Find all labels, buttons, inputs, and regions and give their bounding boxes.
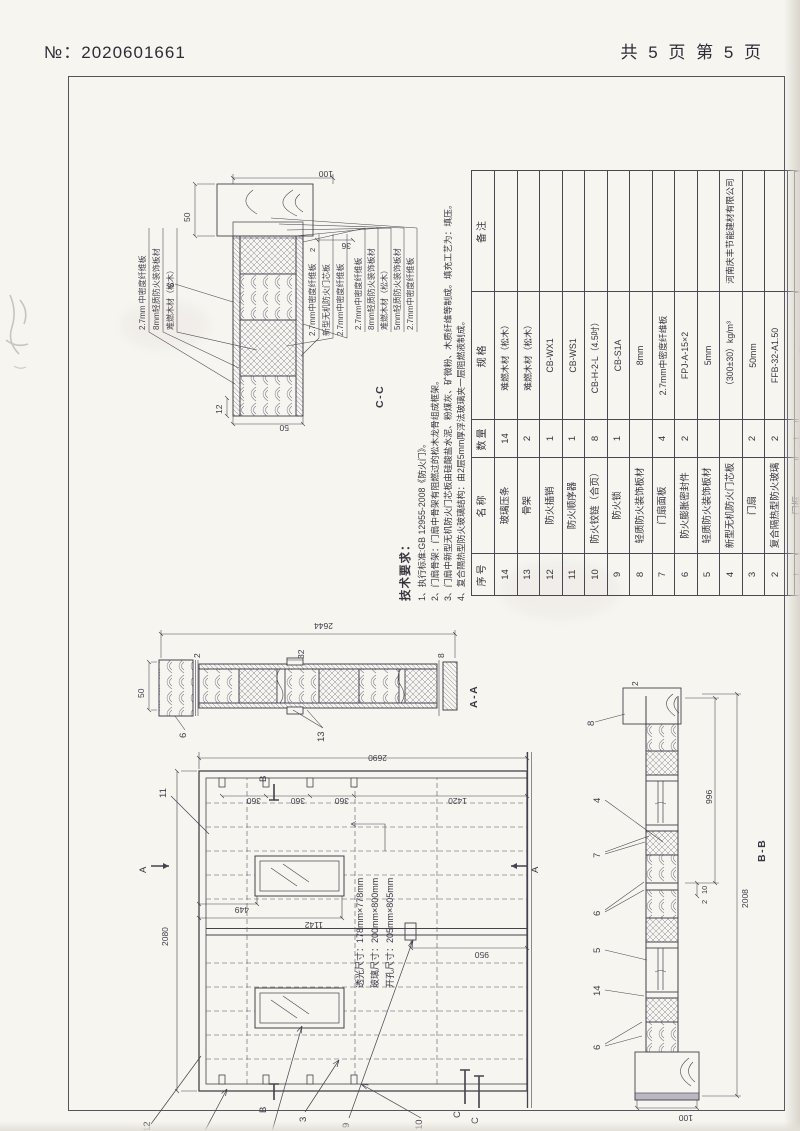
table-cell: 2: [742, 420, 765, 458]
table-cell: 玻璃压条: [495, 458, 518, 554]
table-cell: [495, 171, 518, 292]
scan-bottom-shadow: [0, 1121, 800, 1131]
table-cell: 防火锁: [607, 458, 630, 554]
table-cell: CB-WS1: [562, 292, 585, 420]
table-cell: 骨架: [517, 458, 540, 554]
dim-label: 950: [475, 951, 489, 960]
table-cell: 12: [540, 554, 563, 596]
glass-size-line: 玻璃尺寸：200mm×800mm: [368, 878, 383, 988]
table-cell: 9: [607, 554, 630, 596]
table-row: 3门扇250mm: [742, 171, 765, 596]
view-label: C-C: [375, 385, 386, 408]
table-cell: 8: [630, 554, 653, 596]
callout-label: 11: [159, 788, 169, 798]
glass-size-notes: 透光尺寸：178mm×778mm玻璃尺寸：200mm×800mm开孔尺寸：205…: [353, 878, 398, 988]
technical-note-line: 1、执行标准:GB 12955-2008《防火门》。: [416, 169, 429, 601]
table-cell: [697, 420, 720, 458]
scanned-page: №：2020601661 共 5 页 第 5 页: [0, 0, 800, 1131]
dim-label: 50: [137, 689, 146, 698]
technical-notes: 技术要求： 1、执行标准:GB 12955-2008《防火门》。2、门扇骨架：门…: [397, 169, 468, 601]
document-number: №：2020601661: [44, 38, 186, 63]
drawing-sheet: 2080269036036036014204491142950121112391…: [137, 153, 800, 1131]
dim-label: 1142: [305, 921, 323, 930]
section-letter: A: [531, 867, 541, 873]
table-cell: 3: [742, 554, 765, 596]
callout-label: 6: [167, 283, 177, 288]
view-label: B-B: [757, 839, 768, 862]
table-cell: 防火插销: [540, 458, 563, 554]
table-header-cell: 备注: [472, 171, 495, 292]
drawing-border: 2080269036036036014204491142950121112391…: [68, 76, 785, 1111]
callout-label: 13: [317, 731, 327, 742]
table-row: 8轻质防火装饰板材8mm: [630, 171, 653, 596]
table-cell: 2: [517, 420, 540, 458]
table-cell: FPJ-A-15×2: [675, 292, 698, 420]
table-cell: [675, 171, 698, 292]
material-label: 2.7mm中密度纤维板: [355, 258, 363, 330]
table-cell: 14: [495, 554, 518, 596]
table-cell: [607, 171, 630, 292]
table-cell: 防火膨胀密封件: [675, 458, 698, 554]
table-cell: [652, 171, 675, 292]
material-label: 2.7mm中密度纤维板: [337, 264, 345, 336]
technical-note-line: 4、复合隔热型防火玻璃结构：由2层5mm厚浮法玻璃夹一层阻燃液制成。: [455, 169, 468, 601]
dim-label: 360: [335, 797, 349, 806]
table-row: 9防火锁1CB-S1A: [607, 171, 630, 596]
table-cell: 门扇: [742, 458, 765, 554]
section-letter: A: [139, 867, 149, 873]
dim-label: 2: [701, 900, 709, 904]
table-cell: [742, 171, 765, 292]
dim-label: 100: [319, 170, 333, 179]
material-label: 8mm轻质防火装饰板材: [368, 248, 376, 330]
table-header-cell: 数量: [472, 420, 495, 458]
material-label: 难燃木材（松木）: [167, 266, 175, 330]
table-row: 11防火顺序器1CB-WS1: [562, 171, 585, 596]
material-label: 2.7mm中密度纤维板: [309, 264, 317, 336]
parts-table: 序号名称数量规格备注 14玻璃压条14难燃木材（松木）13骨架2难燃木材（松木）…: [471, 170, 800, 596]
dim-label: 360: [291, 797, 305, 806]
section-letter: B: [259, 776, 269, 782]
table-cell: CB-WX1: [540, 292, 563, 420]
table-cell: 轻质防火装饰板材: [630, 458, 653, 554]
table-header-cell: 规格: [472, 292, 495, 420]
table-cell: [585, 171, 608, 292]
callout-label: 7: [593, 853, 603, 858]
table-cell: 1: [562, 420, 585, 458]
dim-label: 2690: [368, 754, 387, 763]
table-cell: （300±30）kg/m³: [720, 292, 743, 420]
material-label: 新型无机防火门芯板: [323, 264, 331, 336]
table-row: 13骨架2难燃木材（松木）: [517, 171, 540, 596]
table-row: 14玻璃压条14难燃木材（松木）: [495, 171, 518, 596]
dim-label: 2080: [161, 927, 170, 946]
callout-label: 6: [179, 733, 189, 738]
table-cell: 50mm: [742, 292, 765, 420]
table-cell: 8: [585, 420, 608, 458]
table-row: 10防火铰链（合页）8CB-H-2-L（4.5吋）: [585, 171, 608, 596]
callout-label: 6: [593, 911, 603, 916]
table-cell: 5: [697, 554, 720, 596]
dim-label: 2008: [741, 889, 750, 908]
dim-label: 32: [297, 650, 306, 659]
section-bb: [595, 688, 741, 1110]
table-header-cell: 名称: [472, 458, 495, 554]
material-label: 8mm轻质防火装饰板材: [153, 248, 161, 330]
table-header-row: 序号名称数量规格备注: [472, 171, 495, 596]
callout-label: 14: [593, 985, 603, 996]
table-cell: 4: [652, 420, 675, 458]
dim-label: 449: [235, 906, 249, 915]
callout-label: 6: [593, 1045, 603, 1050]
dim-label: 50: [183, 213, 192, 222]
table-cell: 13: [517, 554, 540, 596]
dim-label: 8: [437, 653, 446, 658]
table-cell: 8mm: [630, 292, 653, 420]
scan-edge-shadow: [784, 0, 800, 1131]
technical-note-line: 2、门扇骨架：门扇中骨架有阻燃过的松木龙骨组成框架。: [429, 169, 442, 601]
table-row: 7门扇面板42.7mm中密度纤维板: [652, 171, 675, 596]
table-cell: 1: [607, 420, 630, 458]
table-cell: [562, 171, 585, 292]
table-header-cell: 序号: [472, 554, 495, 596]
glass-size-line: 开孔尺寸：205mm×805mm: [383, 878, 398, 988]
callout-label: 5: [593, 948, 603, 953]
table-cell: [540, 171, 563, 292]
table-cell: [697, 171, 720, 292]
table-cell: 河南庆丰节能建材有限公司: [720, 171, 743, 292]
table-cell: 新型无机防火门芯板: [720, 458, 743, 554]
table-cell: 5mm: [697, 292, 720, 420]
table-row: 4新型无机防火门芯板（300±30）kg/m³河南庆丰节能建材有限公司: [720, 171, 743, 596]
page-count: 共 5 页 第 5 页: [620, 38, 764, 63]
table-cell: 轻质防火装饰板材: [697, 458, 720, 554]
table-cell: 6: [675, 554, 698, 596]
table-cell: [720, 420, 743, 458]
table-row: 5轻质防火装饰板材5mm: [697, 171, 720, 596]
table-cell: 10: [585, 554, 608, 596]
table-cell: [630, 171, 653, 292]
dim-label: 12: [215, 405, 224, 414]
table-cell: 1: [540, 420, 563, 458]
section-letter: C: [453, 1111, 463, 1118]
table-cell: 11: [562, 554, 585, 596]
elevation-view: [151, 752, 532, 1131]
callout-label: 4: [593, 798, 603, 803]
dim-label: 2: [309, 248, 317, 252]
dim-label: 1420: [448, 797, 467, 806]
dim-label: 996: [705, 790, 714, 804]
material-label: 难燃木材（松木）: [381, 266, 389, 330]
view-label: A-A: [469, 685, 480, 708]
dim-label: 2644: [314, 622, 333, 631]
table-cell: 难燃木材（松木）: [495, 292, 518, 420]
table-row: 6防火膨胀密封件2FPJ-A-15×2: [675, 171, 698, 596]
table-cell: 防火顺序器: [562, 458, 585, 554]
table-cell: 难燃木材（松木）: [517, 292, 540, 420]
table-cell: CB-S1A: [607, 292, 630, 420]
dim-label: 2: [631, 681, 640, 686]
table-cell: 14: [495, 420, 518, 458]
callout-label: 8: [587, 721, 597, 726]
technical-notes-title: 技术要求：: [397, 169, 413, 601]
dim-label: 2: [193, 653, 202, 658]
dim-label: 50: [280, 424, 289, 433]
table-cell: 7: [652, 554, 675, 596]
table-cell: [517, 171, 540, 292]
table-cell: [630, 420, 653, 458]
material-label: 2.7mm 中密度纤维板: [139, 255, 147, 330]
technical-note-line: 3、门扇中新型无机防火门芯板由硅酸盐水泥、粉煤灰、矿微粉、木质纤维等制成。填充工…: [442, 169, 455, 601]
glass-size-line: 透光尺寸：178mm×778mm: [353, 878, 368, 988]
dim-label: 360: [247, 797, 261, 806]
section-letter: B: [259, 1107, 269, 1113]
dim-label: 10: [701, 886, 709, 894]
table-cell: 2.7mm中密度纤维板: [652, 292, 675, 420]
table-cell: CB-H-2-L（4.5吋）: [585, 292, 608, 420]
dim-label: 36: [342, 242, 351, 251]
table-cell: 防火铰链（合页）: [585, 458, 608, 554]
table-cell: 4: [720, 554, 743, 596]
table-cell: 门扇面板: [652, 458, 675, 554]
section-aa: [147, 630, 457, 730]
pencil-mark: [0, 0, 60, 420]
table-row: 12防火插销1CB-WX1: [540, 171, 563, 596]
table-cell: 2: [675, 420, 698, 458]
